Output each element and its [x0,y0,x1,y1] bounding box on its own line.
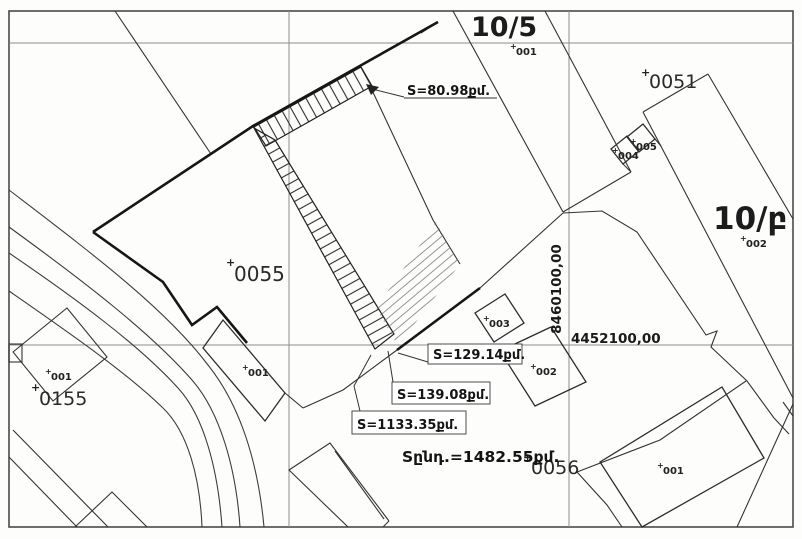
point-label-001-bottom-right: 001 [663,466,684,477]
hatch-wedge [376,222,460,346]
cadastral-map-canvas: 10/5 10/բ + 0051 + 0055 + 0155 + 0056 + … [0,0,802,539]
area-label-band-long: S=139.08քմ. [397,388,489,403]
area-label-band-top: S=80.98քմ. [407,84,490,99]
road-lines [9,190,264,527]
point-label-001-bottom-left: 001 [51,372,72,383]
hatch-band-top [254,67,372,146]
cadastral-map-sheet: 10/5 10/բ + 0051 + 0055 + 0155 + 0056 + … [0,0,802,539]
parcel-label-0051: 0051 [649,71,697,93]
area-label-wedge: S=129.14քմ. [433,348,525,363]
area-label-main: S=1133.35քմ. [357,418,458,433]
arrowhead [366,84,379,95]
hatch-band-long [254,128,394,349]
point-label-001-top: 001 [516,47,537,58]
point-label-003: 003 [489,319,510,330]
grid-line-label-horizontal: 4452100,00 [571,331,661,347]
grid-line-label-vertical: 8460100,00 [549,244,565,334]
point-label-005: 005 [636,142,657,153]
building-001-bottom-right [600,387,764,527]
zone-label-10-b: 10/բ [713,201,787,237]
parcel-label-0155: 0155 [39,388,87,410]
zone-label-10-5: 10/5 [471,12,537,43]
parcel-label-0055: 0055 [234,262,285,286]
map-labels: 10/5 10/բ + 0051 + 0055 + 0155 + 0056 + … [31,12,787,479]
point-label-001-center: 001 [248,368,269,379]
point-label-002-center: 002 [536,367,557,378]
point-label-002-right: 002 [746,239,767,250]
area-label-total: Sընդ.=1482.55քմ. [402,448,559,466]
